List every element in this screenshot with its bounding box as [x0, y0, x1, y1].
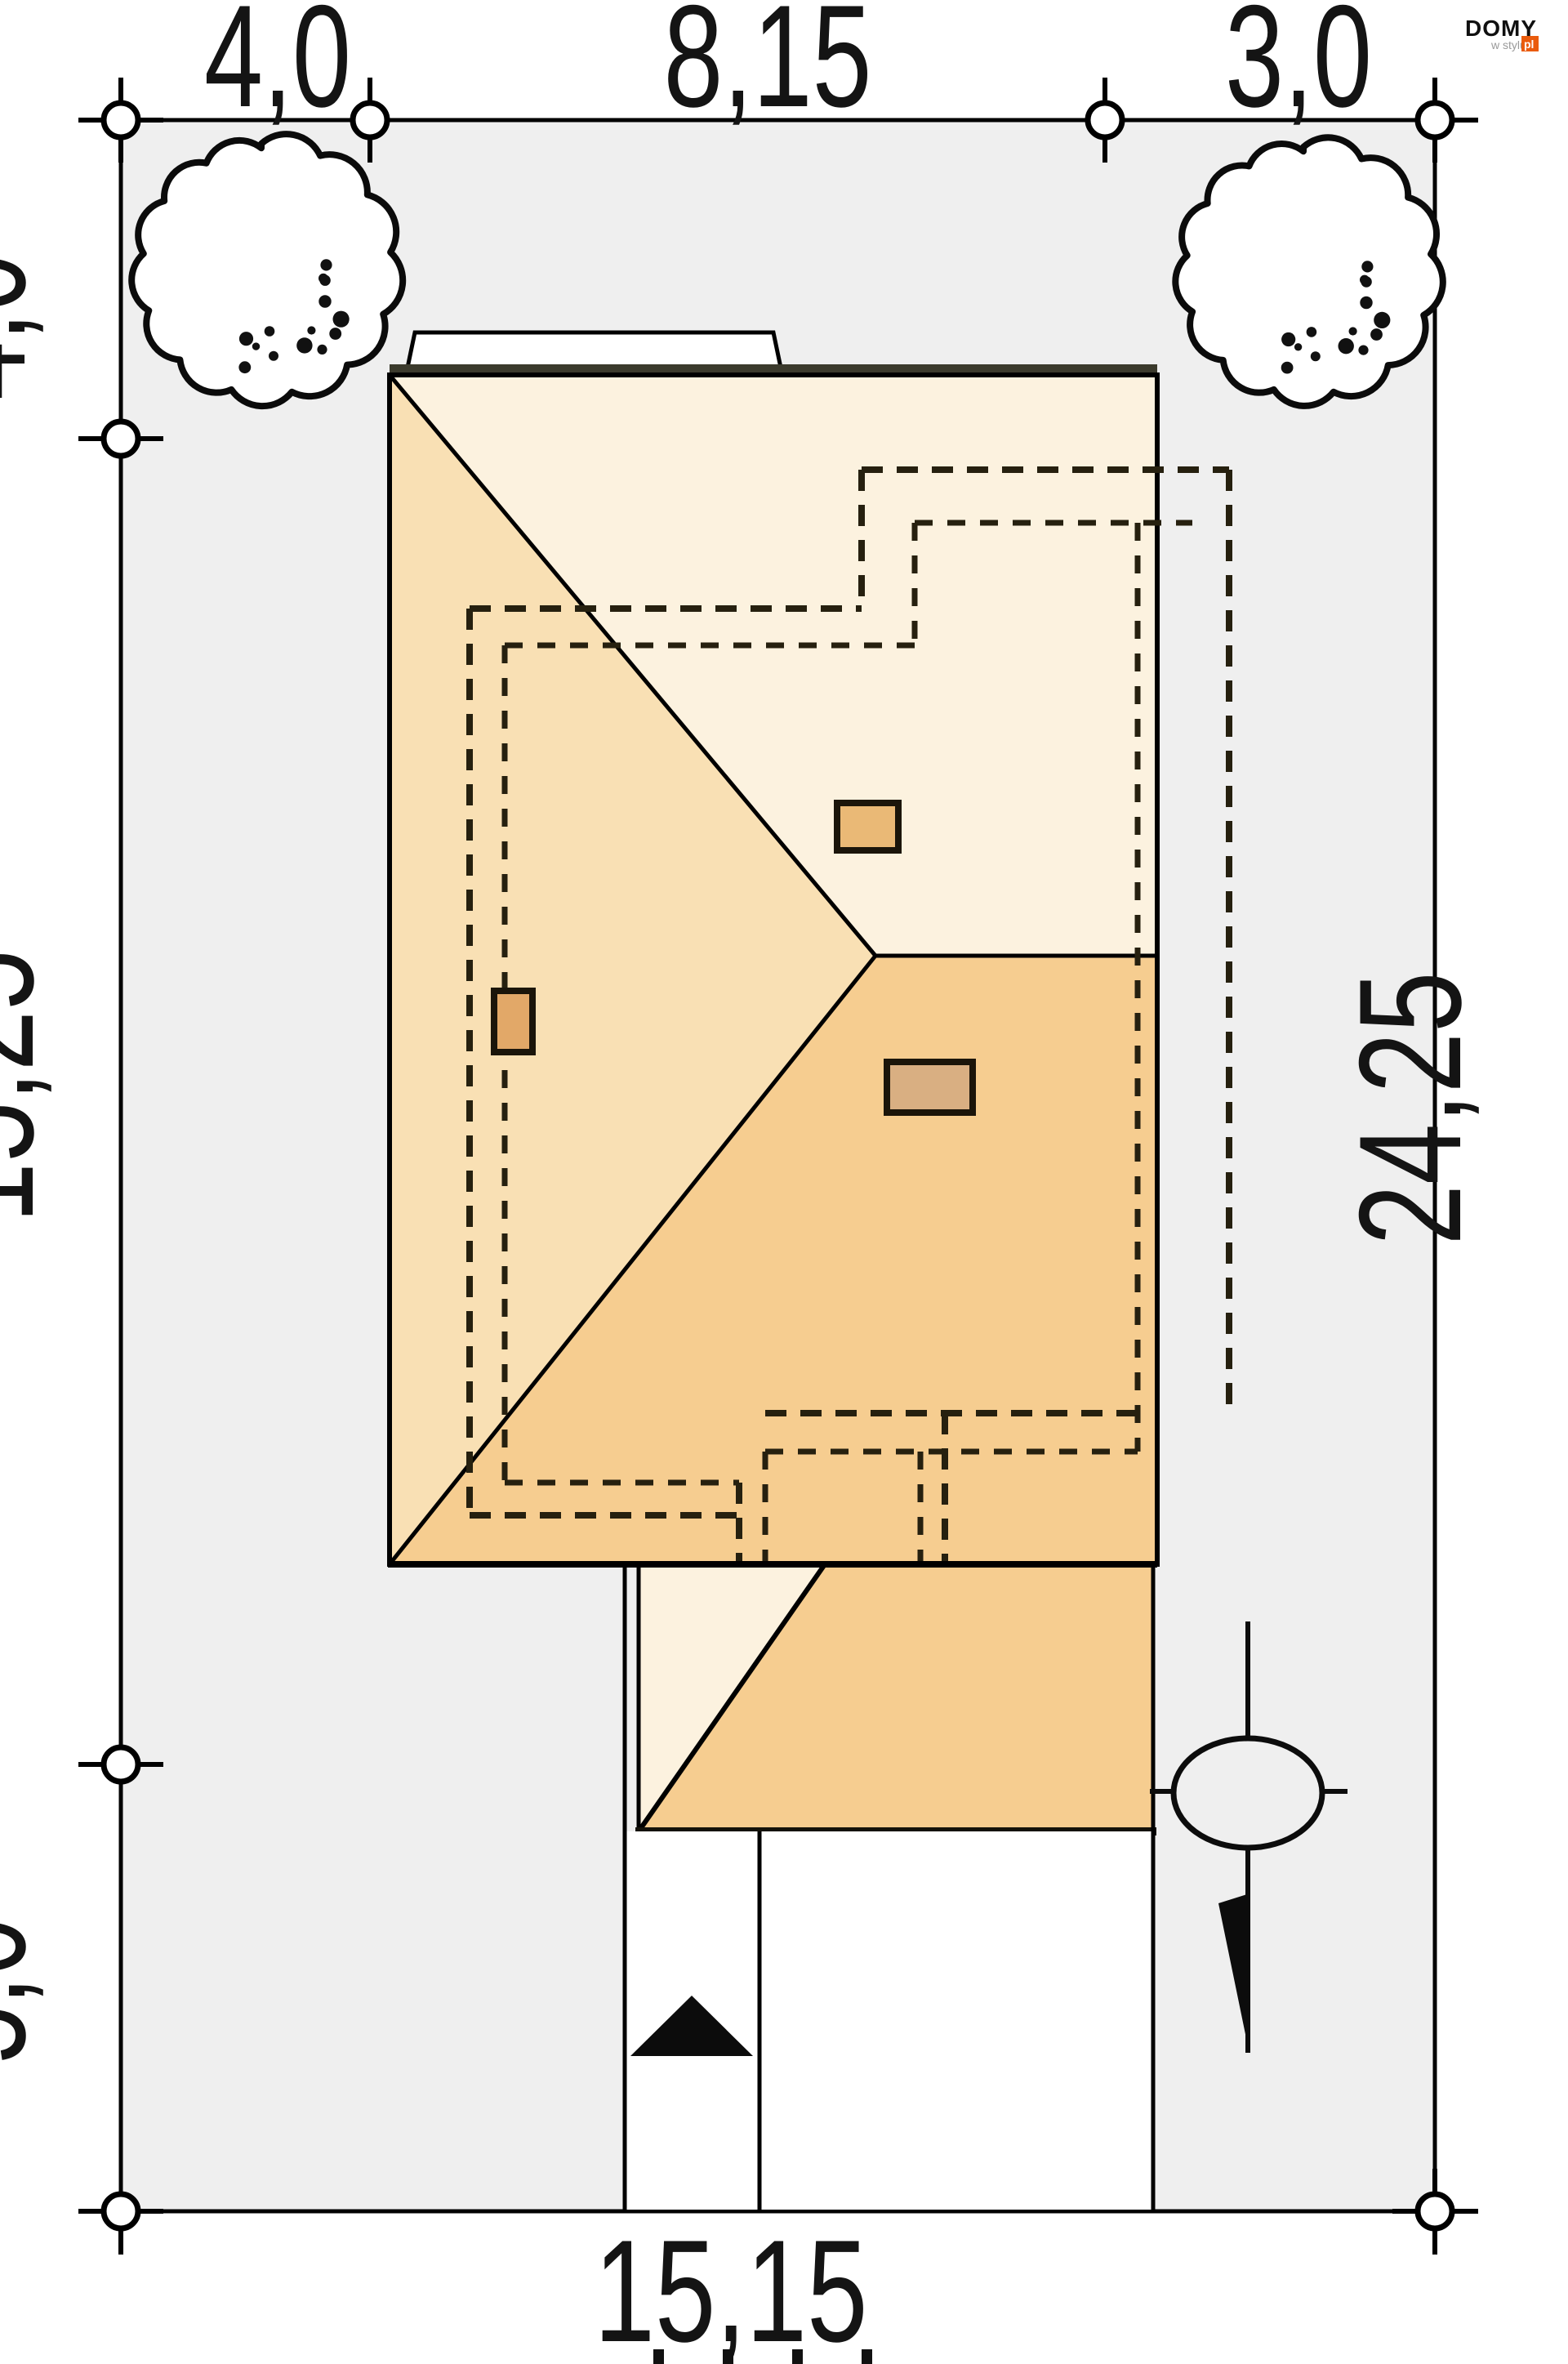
logo: DOMY w stylu pl — [1465, 16, 1539, 51]
logo-tld: pl — [1524, 38, 1534, 51]
dim-top-2: 8,15 — [664, 0, 872, 137]
tree-speckle — [320, 259, 332, 270]
dim-left-3: 5,0 — [0, 1917, 56, 2064]
tree-speckle — [1360, 297, 1372, 309]
dim-left-1: 4,0 — [0, 253, 56, 400]
tree-speckle — [1358, 346, 1368, 355]
tree-speckle — [1281, 362, 1294, 374]
tree-speckle — [1374, 312, 1390, 328]
skylight — [408, 332, 781, 368]
dim-right-1: 24,25 — [1329, 972, 1491, 1246]
tree-speckle — [1370, 328, 1383, 341]
chimney — [494, 991, 532, 1052]
tree-speckle — [1361, 261, 1373, 272]
tree-speckle — [1311, 351, 1321, 361]
site-plan: 4,0 8,15 3,0 4,0 15,25 5,0 24,25 15,15 D… — [0, 0, 1568, 2364]
dim-top-3: 3,0 — [1225, 0, 1372, 137]
tree-speckle — [319, 275, 330, 286]
tree-speckle — [329, 328, 341, 340]
tree-speckle — [1339, 338, 1354, 354]
chimney — [887, 1062, 973, 1113]
dim-bottom-1: 15,15 — [595, 2210, 868, 2364]
tree-speckle — [1294, 343, 1302, 350]
dim-left-2: 15,25 — [0, 950, 64, 1224]
tree-speckle — [307, 326, 315, 334]
tree-speckle — [239, 332, 253, 346]
tree-speckle — [252, 342, 260, 350]
tree-speckle — [296, 337, 312, 353]
logo-tagline: w stylu — [1490, 38, 1526, 51]
main-roof — [390, 375, 1157, 1564]
tree-speckle — [269, 351, 278, 361]
tree-speckle — [317, 345, 327, 355]
tree-speckle — [238, 361, 251, 373]
tree-speckle — [333, 311, 350, 328]
tree-speckle — [1349, 327, 1357, 335]
tree-speckle — [1281, 332, 1295, 346]
page: { "dimensions": { "top": [ {"value":"4,0… — [0, 0, 1568, 2364]
tree-speckle — [318, 295, 331, 307]
tree-speckle — [1307, 327, 1317, 337]
dim-top-1: 4,0 — [204, 0, 351, 137]
tree-speckle — [1361, 276, 1371, 287]
chimney — [837, 803, 898, 850]
tree-speckle — [265, 326, 275, 337]
